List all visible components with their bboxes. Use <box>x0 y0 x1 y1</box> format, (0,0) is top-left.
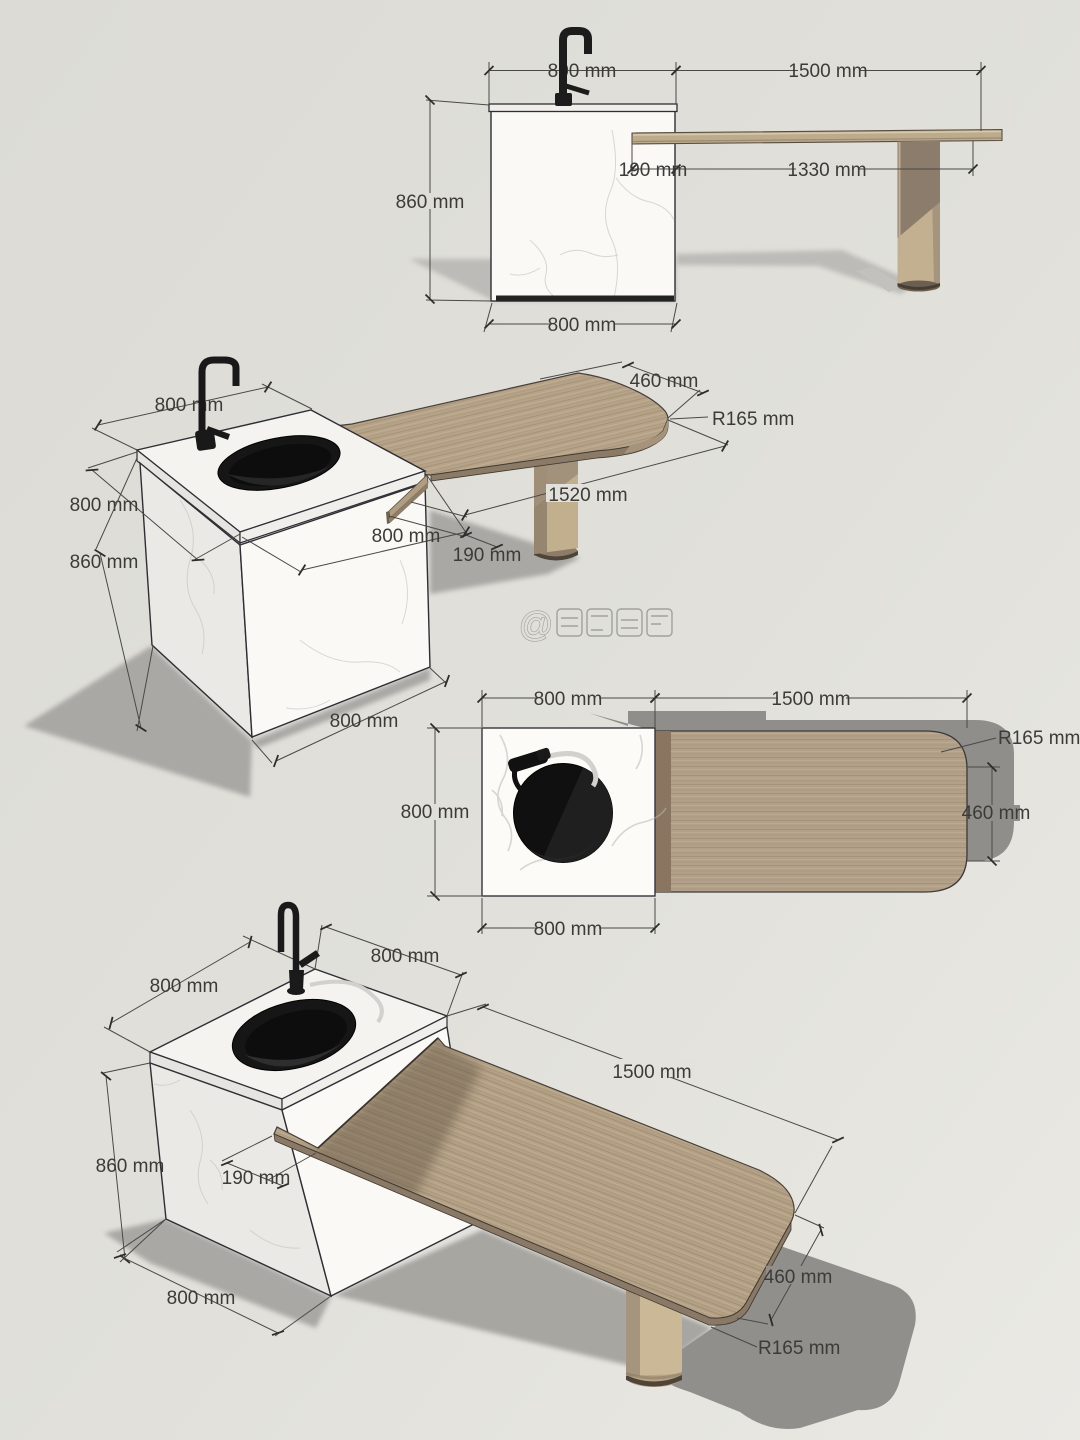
svg-text:800 mm: 800 mm <box>534 919 603 940</box>
svg-text:460 mm: 460 mm <box>962 803 1031 824</box>
svg-text:800 mm: 800 mm <box>167 1288 236 1309</box>
svg-text:1500 mm: 1500 mm <box>771 689 850 710</box>
svg-text:190 mm: 190 mm <box>619 160 688 181</box>
svg-text:1500 mm: 1500 mm <box>612 1062 691 1083</box>
svg-text:800 mm: 800 mm <box>330 711 399 732</box>
svg-text:R165 mm: R165 mm <box>998 728 1080 749</box>
svg-text:800 mm: 800 mm <box>155 395 224 416</box>
svg-text:460 mm: 460 mm <box>630 371 699 392</box>
svg-text:R165 mm: R165 mm <box>712 409 794 430</box>
svg-text:800 mm: 800 mm <box>401 802 470 823</box>
svg-text:800 mm: 800 mm <box>371 946 440 967</box>
svg-text:800 mm: 800 mm <box>534 689 603 710</box>
svg-text:1500 mm: 1500 mm <box>788 61 867 82</box>
svg-text:460 mm: 460 mm <box>764 1267 833 1288</box>
svg-text:1330 mm: 1330 mm <box>787 160 866 181</box>
svg-text:800 mm: 800 mm <box>372 526 441 547</box>
svg-text:R165 mm: R165 mm <box>758 1338 840 1359</box>
svg-text:860 mm: 860 mm <box>396 192 465 213</box>
svg-text:190 mm: 190 mm <box>453 545 522 566</box>
svg-text:190 mm: 190 mm <box>222 1168 291 1189</box>
svg-text:800 mm: 800 mm <box>548 61 617 82</box>
svg-text:800 mm: 800 mm <box>150 976 219 997</box>
svg-text:860 mm: 860 mm <box>70 552 139 573</box>
svg-text:860 mm: 860 mm <box>96 1156 165 1177</box>
svg-text:800 mm: 800 mm <box>548 315 617 336</box>
svg-text:@: @ <box>519 606 554 644</box>
svg-text:800 mm: 800 mm <box>70 495 139 516</box>
svg-text:1520 mm: 1520 mm <box>548 485 627 506</box>
